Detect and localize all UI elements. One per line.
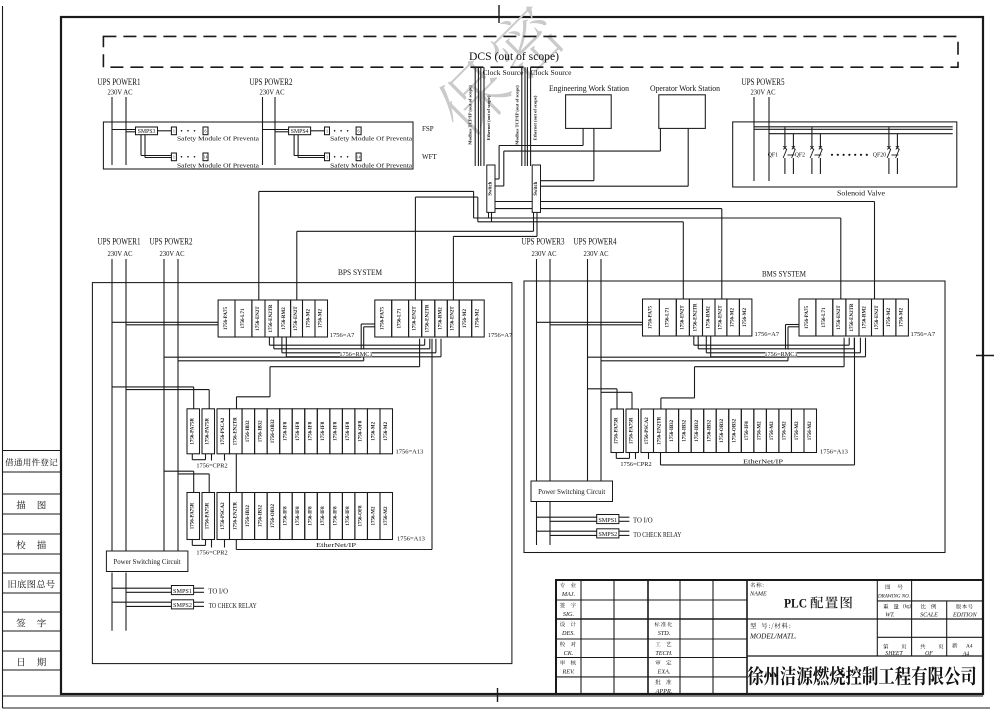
svg-text:SMPS2: SMPS2 xyxy=(598,531,617,538)
svg-text:1756-IF8: 1756-IF8 xyxy=(334,506,339,526)
svg-text:SMPS1: SMPS1 xyxy=(598,517,617,524)
svg-text:1756-IB32: 1756-IB32 xyxy=(258,505,263,527)
svg-text:1756-PA75: 1756-PA75 xyxy=(381,307,386,330)
svg-text:1756=A13: 1756=A13 xyxy=(820,449,848,456)
svg-text:Ethernet (out of scope): Ethernet (out of scope) xyxy=(486,95,491,140)
svg-text:1756-PA75R: 1756-PA75R xyxy=(191,418,196,445)
svg-text:1756-M2: 1756-M2 xyxy=(475,309,480,328)
svg-text:MODEL/MATL.: MODEL/MATL. xyxy=(749,633,797,641)
svg-text:Modbus TCP/IP (out of scope): Modbus TCP/IP (out of scope) xyxy=(468,85,473,145)
svg-text:EtherNet/IP: EtherNet/IP xyxy=(743,459,783,466)
svg-text:DRAWING NO.: DRAWING NO. xyxy=(877,594,910,600)
svg-text:1756-M2: 1756-M2 xyxy=(384,421,389,440)
svg-text:DES.: DES. xyxy=(561,630,575,637)
svg-text:Clock Source: Clock Source xyxy=(483,69,524,77)
svg-text:BMS SYSTEM: BMS SYSTEM xyxy=(762,269,806,279)
svg-text:1756-IB32: 1756-IB32 xyxy=(246,505,251,527)
svg-text:1756-M2: 1756-M2 xyxy=(743,308,748,327)
svg-text:QF1: QF1 xyxy=(768,153,778,159)
svg-text:FSP: FSP xyxy=(422,125,434,133)
svg-text:1756-IF8: 1756-IF8 xyxy=(334,421,339,441)
svg-text:1756-M2: 1756-M2 xyxy=(808,421,813,440)
svg-text:1756-RM2: 1756-RM2 xyxy=(439,307,444,330)
svg-text:1756-IF8: 1756-IF8 xyxy=(745,421,750,441)
svg-text:1756-L71: 1756-L71 xyxy=(398,308,403,329)
svg-text:WFT: WFT xyxy=(422,153,438,161)
svg-text:1756-M2: 1756-M2 xyxy=(770,421,775,440)
svg-text:Switch: Switch xyxy=(534,181,539,195)
svg-text:SIG.: SIG. xyxy=(563,611,574,618)
svg-text:1756-EN2TR: 1756-EN2TR xyxy=(233,502,238,530)
svg-text:1756-EN2T: 1756-EN2T xyxy=(294,306,299,331)
svg-text:1756-OB32: 1756-OB32 xyxy=(271,504,276,528)
svg-text:1756=A13: 1756=A13 xyxy=(397,536,425,543)
svg-text:PLC: PLC xyxy=(784,596,807,611)
svg-text:UPS POWER3: UPS POWER3 xyxy=(522,237,565,247)
svg-text:Safety Module Of Preventa: Safety Module Of Preventa xyxy=(330,135,413,142)
svg-text:1756-PA75R: 1756-PA75R xyxy=(191,502,196,529)
svg-text:MAJ.: MAJ. xyxy=(561,591,575,598)
svg-text:1756-IB32: 1756-IB32 xyxy=(670,419,675,441)
svg-text:1756-PA75R: 1756-PA75R xyxy=(206,502,211,529)
svg-text:SMPS2: SMPS2 xyxy=(173,602,192,609)
svg-text:1756-IB32: 1756-IB32 xyxy=(246,420,251,442)
svg-text:1756-M2: 1756-M2 xyxy=(900,308,905,327)
svg-text:1756-EN2TR: 1756-EN2TR xyxy=(426,304,431,332)
svg-text:1756-M2: 1756-M2 xyxy=(887,308,892,327)
svg-text:1756-M2: 1756-M2 xyxy=(371,421,376,440)
svg-text:1756-EN2T: 1756-EN2T xyxy=(680,305,685,330)
svg-text:1756-RM2: 1756-RM2 xyxy=(282,307,287,330)
svg-text:SMPS1: SMPS1 xyxy=(173,588,192,595)
svg-text:UPS POWER1: UPS POWER1 xyxy=(98,77,141,87)
svg-text:WT.: WT. xyxy=(885,613,894,619)
svg-text:Modbus TCP/IP (out of scope): Modbus TCP/IP (out of scope) xyxy=(514,85,519,145)
svg-text:EDITION: EDITION xyxy=(952,613,978,619)
svg-text:1756=A7: 1756=A7 xyxy=(755,331,780,338)
svg-text:SCALE: SCALE xyxy=(920,613,938,619)
svg-text:TECH.: TECH. xyxy=(655,650,672,657)
svg-text:1756=CPR2: 1756=CPR2 xyxy=(196,550,227,557)
svg-text:1756-IF8: 1756-IF8 xyxy=(321,506,326,526)
svg-text:1756=A7: 1756=A7 xyxy=(488,332,513,339)
svg-text:1756-PA75R: 1756-PA75R xyxy=(630,417,635,444)
svg-text:1756-PA75: 1756-PA75 xyxy=(224,307,229,330)
svg-text:UPS POWER4: UPS POWER4 xyxy=(574,237,617,247)
svg-text:1756-PA75: 1756-PA75 xyxy=(649,306,654,329)
svg-text:DCS (out of scope): DCS (out of scope) xyxy=(469,51,559,63)
svg-text:1756-EN2T: 1756-EN2T xyxy=(413,306,418,331)
svg-text:Clock Source: Clock Source xyxy=(531,69,572,77)
svg-text:6: 6 xyxy=(358,129,360,134)
svg-text:1756-M2: 1756-M2 xyxy=(306,309,311,328)
svg-text:1756-EN2T: 1756-EN2T xyxy=(256,306,261,331)
svg-text:1756-M2: 1756-M2 xyxy=(758,421,763,440)
svg-text:SHEET: SHEET xyxy=(885,651,903,657)
svg-text:1756-IB32: 1756-IB32 xyxy=(258,420,263,442)
svg-text:Operator Work Station: Operator Work Station xyxy=(650,84,720,93)
svg-text:230V AC: 230V AC xyxy=(108,88,133,97)
svg-text:SMPS4: SMPS4 xyxy=(291,129,309,135)
svg-text:1: 1 xyxy=(173,129,175,134)
svg-text:1756-EN2TR: 1756-EN2TR xyxy=(850,303,855,331)
svg-text:1756-IF8: 1756-IF8 xyxy=(296,421,301,441)
svg-text:STD.: STD. xyxy=(658,630,671,637)
svg-text:1756-PA75R: 1756-PA75R xyxy=(615,417,620,444)
svg-text:1756-IF8: 1756-IF8 xyxy=(346,421,351,441)
svg-text:BPS SYSTEM: BPS SYSTEM xyxy=(338,267,382,277)
svg-text:1756-L71: 1756-L71 xyxy=(241,308,246,329)
svg-text:1756-IF8: 1756-IF8 xyxy=(346,506,351,526)
svg-text:1756-M2: 1756-M2 xyxy=(319,309,324,328)
svg-text:230V AC: 230V AC xyxy=(584,249,609,258)
svg-text:1756-PSCA2: 1756-PSCA2 xyxy=(221,502,226,530)
svg-text:1756-PSCA2: 1756-PSCA2 xyxy=(645,417,650,445)
svg-text:1: 1 xyxy=(326,155,328,160)
svg-text:UPS POWER2: UPS POWER2 xyxy=(150,237,193,247)
svg-text:1756-L71: 1756-L71 xyxy=(822,307,827,328)
svg-text:1756-PSCA2: 1756-PSCA2 xyxy=(221,417,226,445)
svg-text:1756-IF8: 1756-IF8 xyxy=(309,421,314,441)
svg-text:UPS POWER1: UPS POWER1 xyxy=(98,237,141,247)
svg-text:QF2: QF2 xyxy=(795,153,805,159)
svg-text:1756-IF8: 1756-IF8 xyxy=(296,506,301,526)
svg-text:1756-M2: 1756-M2 xyxy=(384,506,389,525)
svg-text:1756-EN2TR: 1756-EN2TR xyxy=(657,416,662,444)
svg-text:Switch: Switch xyxy=(488,181,493,195)
svg-text:1756-IF8: 1756-IF8 xyxy=(309,506,314,526)
svg-text:1756-OF8: 1756-OF8 xyxy=(359,420,364,442)
svg-text:230V AC: 230V AC xyxy=(751,88,776,97)
svg-text:TO I/O: TO I/O xyxy=(633,518,653,525)
svg-text:QF20: QF20 xyxy=(873,153,886,159)
svg-text:Engineering Work Station: Engineering Work Station xyxy=(549,84,629,93)
svg-text:14: 14 xyxy=(357,156,361,160)
svg-text:1756-L71: 1756-L71 xyxy=(665,307,670,328)
svg-text:6: 6 xyxy=(204,129,206,134)
svg-text:Solenoid Valve: Solenoid Valve xyxy=(837,190,885,198)
svg-text:1756-IF8: 1756-IF8 xyxy=(284,506,289,526)
svg-text:1756-PA75R: 1756-PA75R xyxy=(206,418,211,445)
svg-text:Power Switching Circuit: Power Switching Circuit xyxy=(538,489,605,496)
svg-text:TO I/O: TO I/O xyxy=(208,589,228,596)
svg-text:1756-EN2T: 1756-EN2T xyxy=(837,305,842,330)
svg-text:1756-OB32: 1756-OB32 xyxy=(720,418,725,442)
svg-text:1756-EN2TR: 1756-EN2TR xyxy=(233,417,238,445)
svg-text:A4: A4 xyxy=(962,650,970,657)
svg-text:A4: A4 xyxy=(966,644,973,650)
svg-text:14: 14 xyxy=(204,156,208,160)
svg-text:Safety Module Of Preventa: Safety Module Of Preventa xyxy=(177,135,260,142)
svg-text:1756=CPR2: 1756=CPR2 xyxy=(620,461,651,468)
svg-text:1756=A13: 1756=A13 xyxy=(396,449,424,456)
svg-text:1756-M2: 1756-M2 xyxy=(731,308,736,327)
svg-text:1756-M2: 1756-M2 xyxy=(463,309,468,328)
svg-text:Safety Module Of Preventa: Safety Module Of Preventa xyxy=(330,162,413,169)
svg-text:1756-M2: 1756-M2 xyxy=(795,421,800,440)
svg-text:1756=RMC1: 1756=RMC1 xyxy=(339,351,372,358)
svg-text:1756-RM2: 1756-RM2 xyxy=(706,306,711,329)
svg-text:1756=CPR2: 1756=CPR2 xyxy=(196,462,227,469)
svg-text:1756-IB32: 1756-IB32 xyxy=(695,419,700,441)
svg-text:TO CHECK RELAY: TO CHECK RELAY xyxy=(209,603,257,610)
svg-text:1756-OB32: 1756-OB32 xyxy=(271,419,276,443)
svg-text:1756-PA75: 1756-PA75 xyxy=(805,306,810,329)
svg-text:UPS POWER5: UPS POWER5 xyxy=(742,77,785,87)
svg-text:SMPS3: SMPS3 xyxy=(138,129,156,135)
svg-text:1: 1 xyxy=(326,129,328,134)
svg-text:1756-EN2TR: 1756-EN2TR xyxy=(693,303,698,331)
svg-text:1756-IB32: 1756-IB32 xyxy=(682,419,687,441)
svg-text:1756-OF8: 1756-OF8 xyxy=(359,505,364,527)
svg-text:1756=RMC1: 1756=RMC1 xyxy=(764,351,797,358)
svg-text:230V AC: 230V AC xyxy=(160,249,185,258)
svg-text:Safety Module Of Preventa: Safety Module Of Preventa xyxy=(177,162,260,169)
svg-text:CK.: CK. xyxy=(564,650,574,657)
svg-text:UPS POWER2: UPS POWER2 xyxy=(250,77,293,87)
svg-text:1756-OB32: 1756-OB32 xyxy=(733,418,738,442)
svg-text:1756-EN2T: 1756-EN2T xyxy=(451,306,456,331)
svg-text:EXA.: EXA. xyxy=(657,669,671,676)
svg-text:1756-IF8: 1756-IF8 xyxy=(321,421,326,441)
svg-text:1756=A7: 1756=A7 xyxy=(330,332,355,339)
svg-text:EtherNet/IP: EtherNet/IP xyxy=(316,542,356,549)
svg-text:1756-EN2TR: 1756-EN2TR xyxy=(269,304,274,332)
svg-text:1756-RM2: 1756-RM2 xyxy=(863,306,868,329)
svg-text:Power Switching Circuit: Power Switching Circuit xyxy=(113,559,180,566)
svg-text:APPR.: APPR. xyxy=(655,688,673,695)
svg-text:230V AC: 230V AC xyxy=(260,88,285,97)
svg-text:1756-EN2T: 1756-EN2T xyxy=(719,305,724,330)
svg-text:1756-IB32: 1756-IB32 xyxy=(708,419,713,441)
svg-text:1756-EN2T: 1756-EN2T xyxy=(875,305,880,330)
svg-text:1756-IF8: 1756-IF8 xyxy=(284,421,289,441)
svg-text:230V AC: 230V AC xyxy=(532,249,557,258)
svg-text:1756-M2: 1756-M2 xyxy=(371,506,376,525)
svg-text:Ethernet (out of scope): Ethernet (out of scope) xyxy=(533,95,538,140)
svg-text:TO CHECK RELAY: TO CHECK RELAY xyxy=(633,532,681,539)
svg-text:1756-M2: 1756-M2 xyxy=(783,421,788,440)
svg-text:(kg): (kg) xyxy=(903,605,912,610)
svg-text:OF: OF xyxy=(925,651,933,657)
svg-text:230V AC: 230V AC xyxy=(108,249,133,258)
svg-text:NAME: NAME xyxy=(749,591,767,598)
svg-text:REV.: REV. xyxy=(561,669,575,676)
svg-text:1: 1 xyxy=(173,155,175,160)
svg-text:1756=A7: 1756=A7 xyxy=(911,331,936,338)
